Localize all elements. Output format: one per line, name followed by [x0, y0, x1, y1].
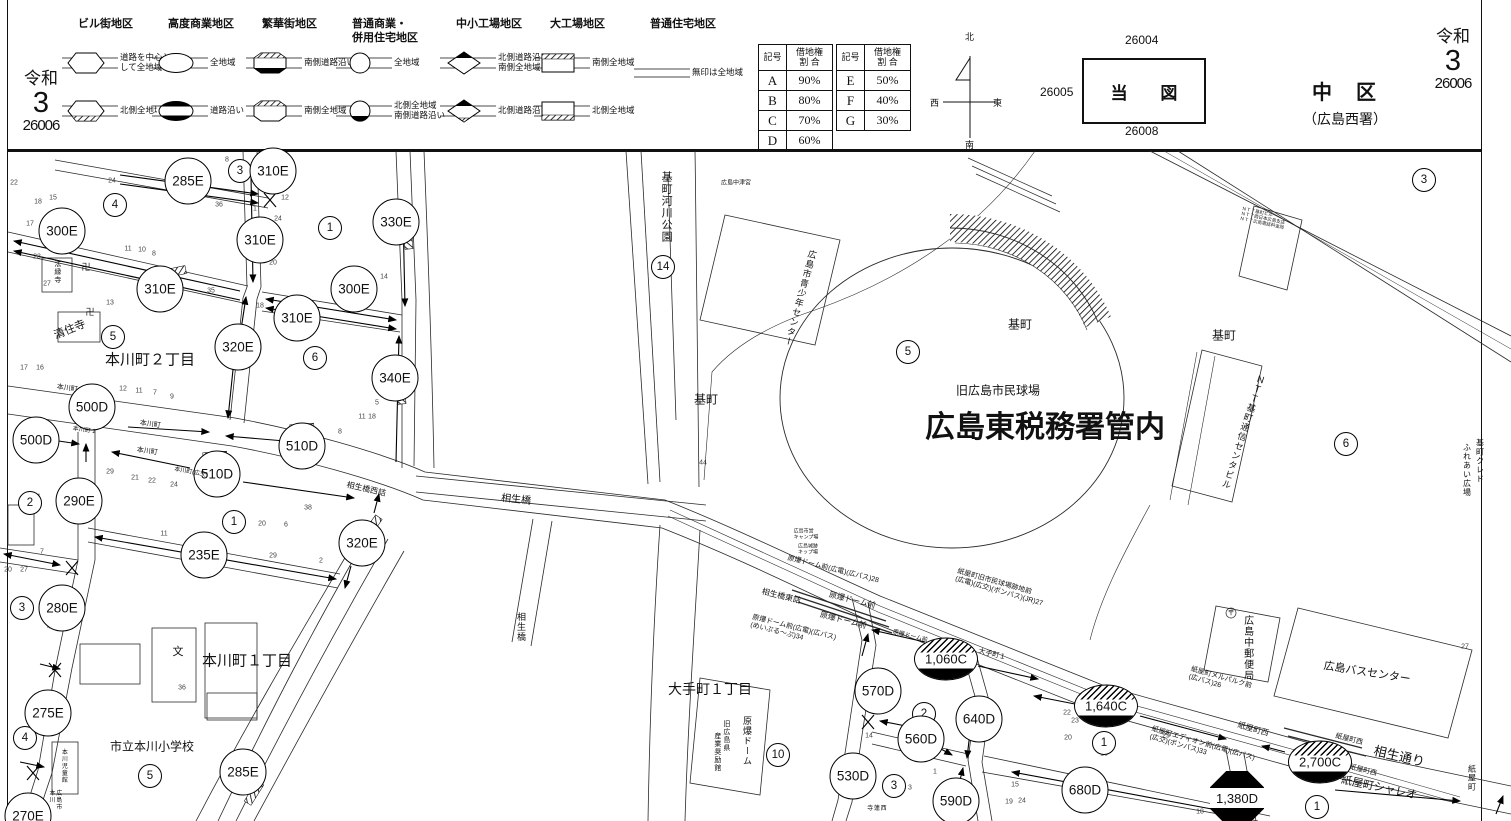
- parcel-number: 20: [4, 567, 12, 574]
- map-label: 相生橋: [516, 612, 526, 642]
- parcel-number: 36: [215, 202, 223, 209]
- route-price-value: 280E: [46, 601, 78, 616]
- route-price-value: 1,640C: [1083, 700, 1129, 713]
- map-label: 基町: [1008, 318, 1032, 331]
- parcel-number: 11: [135, 388, 142, 395]
- parcel-number: 16: [36, 365, 44, 372]
- parcel-number: 27: [20, 567, 28, 574]
- parcel-number: 12: [119, 386, 127, 393]
- parcel-number: 35: [207, 288, 215, 295]
- block-number-marker: 1: [1305, 795, 1329, 819]
- map-label: 本川児童館: [60, 749, 67, 784]
- block-number-marker: 3: [882, 774, 906, 798]
- parcel-number: 15: [1011, 782, 1019, 789]
- map-label: 〒: [1228, 610, 1235, 618]
- map-label: 法縁寺: [53, 260, 61, 284]
- route-price-value: 320E: [222, 340, 254, 355]
- parcel-number: 29: [106, 469, 114, 476]
- map-label: 基町河川公園: [660, 171, 672, 243]
- route-price-badge: 500D: [13, 417, 60, 464]
- block-number-marker: 1: [222, 510, 246, 534]
- parcel-number: 21: [131, 475, 139, 482]
- parcel-number: 18: [368, 414, 376, 421]
- route-price-value: 285E: [172, 174, 204, 189]
- map-label: 旧広島市民球場: [956, 384, 1040, 397]
- block-number-marker: 5: [138, 764, 162, 788]
- parcel-number: 14: [380, 274, 388, 281]
- parcel-number: 20: [1064, 735, 1072, 742]
- route-price-value: 500D: [20, 433, 52, 448]
- parcel-number: 24: [108, 178, 116, 185]
- parcel-number: 6: [284, 522, 288, 529]
- map-label: 広島市営 キャンプ場: [794, 529, 819, 540]
- parcel-number: 2: [319, 558, 323, 565]
- parcel-number: 5: [375, 400, 379, 407]
- route-price-badge: 310E: [137, 266, 184, 313]
- parcel-number: 27: [1461, 644, 1469, 651]
- map-label: 原爆ドーム: [742, 716, 752, 766]
- block-number-marker: 5: [896, 340, 920, 364]
- block-number-marker: 1: [1092, 731, 1116, 755]
- route-price-badge: 300E: [39, 208, 86, 255]
- parcel-number: 11: [358, 414, 365, 421]
- route-price-value: 310E: [281, 311, 313, 326]
- parcel-number: 1: [253, 206, 257, 213]
- parcel-number: 8: [152, 251, 156, 258]
- parcel-number: 9: [170, 394, 174, 401]
- map-label: 基町: [694, 393, 718, 406]
- route-price-value: 330E: [380, 215, 412, 230]
- parcel-number: 14: [865, 733, 873, 740]
- route-price-value: 310E: [244, 233, 276, 248]
- route-price-badge: 320E: [339, 520, 386, 567]
- parcel-number: 8: [338, 429, 342, 436]
- route-price-value: 500D: [76, 400, 108, 415]
- parcel-number: 11: [124, 246, 131, 253]
- route-price-badge: 310E: [250, 148, 297, 195]
- parcel-number: 23: [33, 254, 41, 261]
- parcel-number: 3: [908, 785, 912, 792]
- route-price-badge: 310E: [274, 295, 321, 342]
- map-label: 広島城跡 キップ場: [798, 544, 818, 555]
- map-label: 広島中郵便局: [1241, 615, 1252, 681]
- parcel-number: 22: [148, 478, 156, 485]
- map-label: 旧広島県: [722, 720, 730, 752]
- route-price-value: 290E: [63, 494, 95, 509]
- parcel-number: 38: [304, 505, 312, 512]
- parcel-number: 17: [20, 365, 28, 372]
- block-number-marker: 4: [103, 193, 127, 217]
- map-label: 市立本川小学校: [110, 740, 194, 753]
- route-price-badge: 560D: [898, 716, 945, 763]
- route-price-value: 2,700C: [1297, 756, 1343, 769]
- route-price-badge: 310E: [237, 217, 284, 264]
- route-price-value: 310E: [257, 164, 289, 179]
- map-linework: [0, 0, 1511, 821]
- parcel-number: 13: [106, 300, 114, 307]
- parcel-number: 1: [933, 769, 937, 776]
- parcel-number: 18: [34, 199, 42, 206]
- route-price-badge: 1,640C: [1074, 685, 1138, 728]
- route-price-badge: 300E: [331, 266, 378, 313]
- block-number-marker: 6: [1334, 432, 1358, 456]
- parcel-number: 12: [281, 195, 289, 202]
- parcel-number: 8: [225, 157, 229, 164]
- route-price-badge: 290E: [56, 478, 103, 525]
- route-price-badge: 530D: [830, 753, 877, 800]
- parcel-number: 29: [269, 553, 277, 560]
- map-label: ふれあい広場: [1462, 443, 1471, 497]
- parcel-number: 7: [153, 390, 157, 397]
- route-price-badge: 285E: [220, 749, 267, 796]
- map-label: 卍: [81, 262, 90, 272]
- block-number-marker: 10: [766, 743, 790, 767]
- route-price-value: 640D: [963, 712, 995, 727]
- block-number-marker: 6: [303, 346, 327, 370]
- route-price-badge: 340E: [372, 355, 419, 402]
- block-number-marker: 14: [651, 255, 675, 279]
- route-price-value: 235E: [188, 548, 220, 563]
- parcel-number: 17: [26, 221, 34, 228]
- parcel-number: 18: [1196, 809, 1204, 816]
- map-label: 基町: [1212, 329, 1236, 342]
- block-number-marker: 5: [101, 325, 125, 349]
- map-label: 本川町２丁目: [105, 353, 195, 370]
- parcel-number: 24: [1018, 798, 1026, 805]
- route-price-badge: 590D: [933, 778, 980, 821]
- map-label: 大手町１丁目: [668, 682, 752, 698]
- route-price-value: 340E: [379, 371, 411, 386]
- parcel-number: 22: [1063, 710, 1071, 717]
- route-price-badge: 275E: [25, 690, 72, 737]
- map-label: 広島市本川: [47, 790, 60, 811]
- route-price-value: 680D: [1069, 783, 1101, 798]
- route-price-badge: 285E: [165, 158, 212, 205]
- route-price-badge: 330E: [373, 199, 420, 246]
- parcel-number: 36: [178, 685, 186, 692]
- parcel-number: 11: [160, 531, 167, 538]
- route-price-value: 275E: [32, 706, 64, 721]
- map-label: 西蓮寺: [865, 805, 885, 816]
- route-price-badge: 320E: [215, 324, 262, 371]
- block-number-marker: 1: [318, 216, 342, 240]
- route-price-value: 590D: [940, 794, 972, 809]
- map-label: 文: [173, 646, 184, 658]
- map-label: 広島中津宮: [721, 181, 751, 188]
- map-label: 本川町１丁目: [202, 654, 292, 671]
- parcel-number: 22: [10, 180, 18, 187]
- route-price-value: 300E: [338, 282, 370, 297]
- map-label: 産業奨励館: [713, 732, 721, 772]
- route-price-value: 320E: [346, 536, 378, 551]
- block-number-marker: 2: [18, 491, 42, 515]
- parcel-number: 10: [138, 247, 146, 254]
- route-price-value: 510D: [286, 439, 318, 454]
- rosenka-map-page: 令和 3 26006 令和 3 26006 中 区 （広島西署） ビル街地区道路…: [0, 0, 1511, 821]
- route-price-value: 270E: [12, 809, 44, 821]
- block-number-marker: 3: [10, 596, 34, 620]
- map-label: 卍: [85, 307, 94, 317]
- route-price-badge: 640D: [956, 696, 1003, 743]
- map-label: 広島東税務署管内: [925, 411, 1165, 445]
- parcel-number: 18: [256, 303, 264, 310]
- parcel-number: 44: [699, 460, 707, 467]
- map-label: 紙屋町: [1467, 765, 1476, 792]
- block-number-marker: 3: [228, 159, 252, 183]
- parcel-number: 19: [1005, 799, 1013, 806]
- parcel-number: 24: [170, 482, 178, 489]
- parcel-number: 15: [49, 195, 57, 202]
- route-price-badge: 280E: [39, 585, 86, 632]
- route-price-value: 300E: [46, 224, 78, 239]
- parcel-number: 20: [258, 521, 266, 528]
- route-price-value: 560D: [905, 732, 937, 747]
- route-price-value: 530D: [837, 769, 869, 784]
- parcel-number: 7: [40, 549, 44, 556]
- route-price-badge: 680D: [1062, 767, 1109, 814]
- block-number-marker: 3: [1412, 168, 1436, 192]
- route-price-value: 310E: [144, 282, 176, 297]
- parcel-number: 27: [43, 281, 51, 288]
- route-price-value: 1,060C: [923, 653, 969, 666]
- route-price-badge: 235E: [181, 532, 228, 579]
- map-label: 基町クレド: [1475, 439, 1484, 484]
- route-price-badge: 510D: [279, 423, 326, 470]
- route-price-value: 1,380D: [1210, 788, 1264, 809]
- route-price-badge: 570D: [855, 668, 902, 715]
- route-price-value: 285E: [227, 765, 259, 780]
- route-price-value: 570D: [862, 684, 894, 699]
